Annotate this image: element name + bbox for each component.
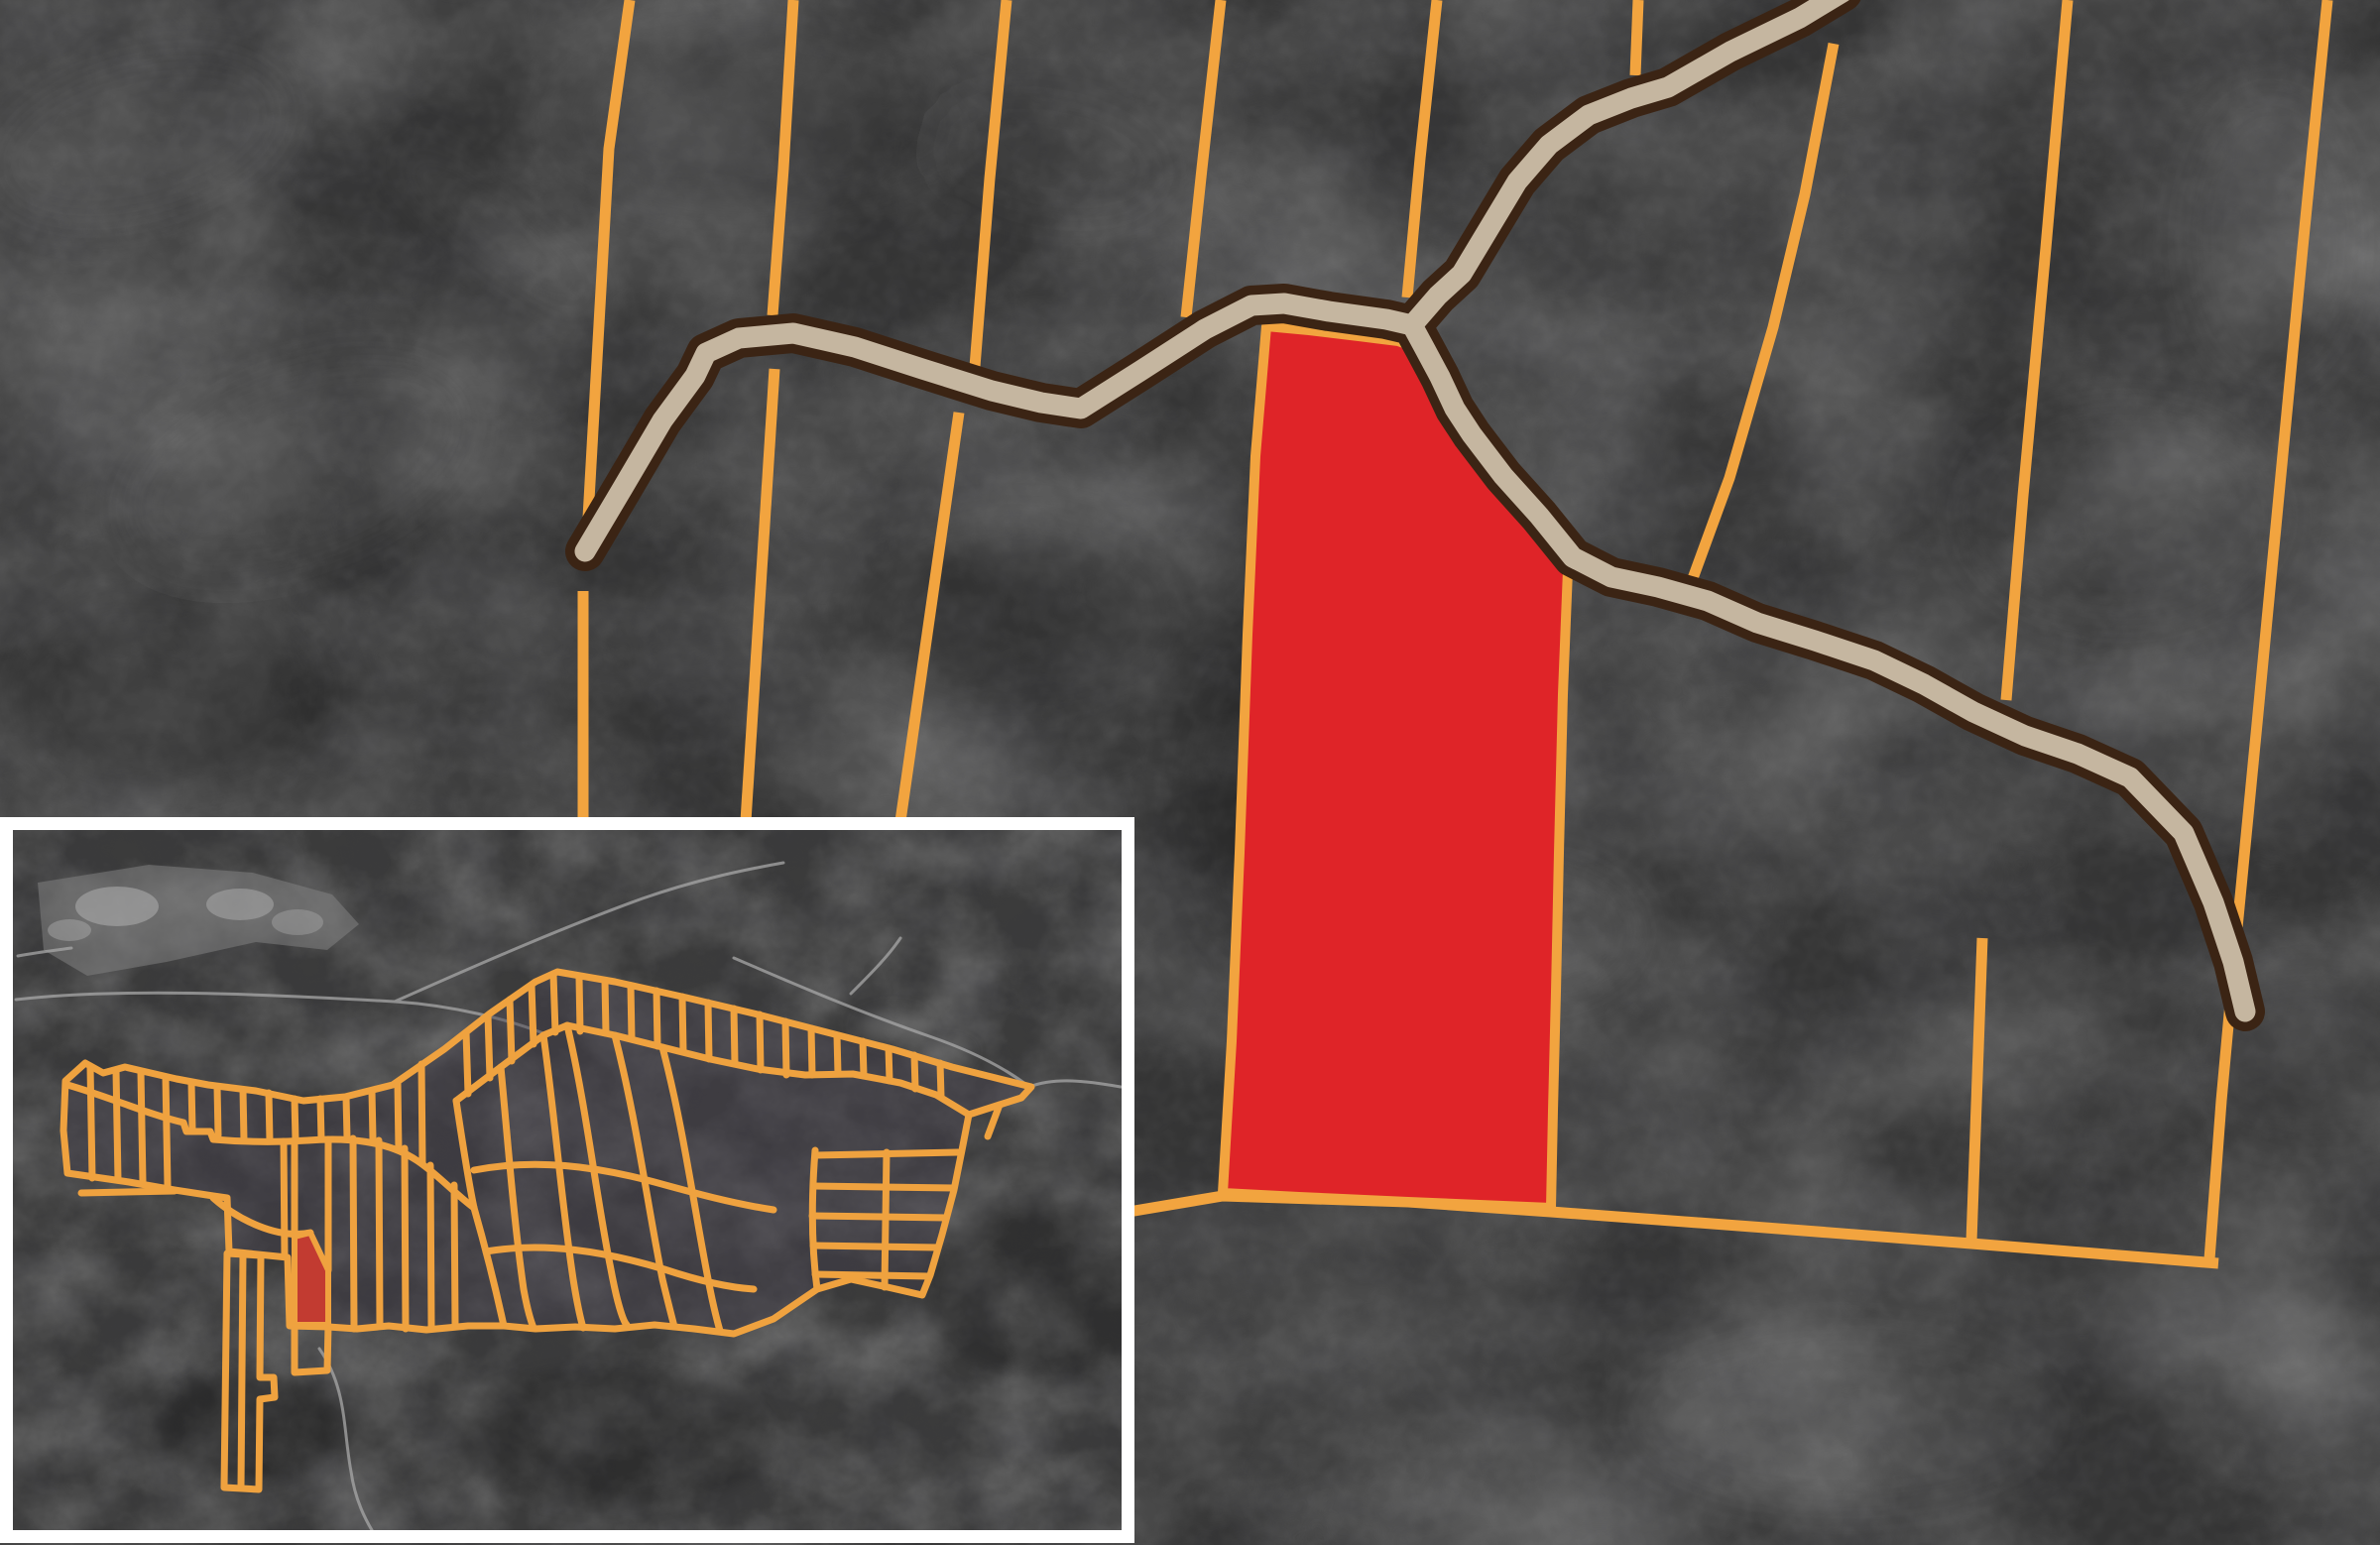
light-terrain-patch bbox=[1626, 1329, 2063, 1507]
inset-light-patch bbox=[859, 1011, 926, 1041]
inset-parcel-line bbox=[454, 1185, 455, 1326]
inset-parcel-line bbox=[284, 1141, 285, 1256]
inset-parcel-line bbox=[656, 991, 657, 1046]
inset-parcel-line bbox=[863, 1041, 864, 1076]
inset-parcel-line bbox=[553, 974, 555, 1032]
inset-field-patch bbox=[48, 919, 91, 941]
inset-parcel-line bbox=[379, 1140, 380, 1326]
inset-field-patch bbox=[206, 889, 274, 920]
inset-parcel-line bbox=[353, 1138, 354, 1329]
inset-parcel-line bbox=[430, 1165, 431, 1327]
inset-parcel-line bbox=[532, 985, 534, 1044]
inset-parcel-line bbox=[346, 1097, 347, 1137]
inset-parcel-line bbox=[631, 986, 632, 1039]
inset-field-patch bbox=[75, 887, 159, 926]
inset-parcel-line bbox=[605, 981, 606, 1033]
inset-parcel-line bbox=[914, 1055, 915, 1089]
inset-parcel-line bbox=[734, 1009, 735, 1064]
overview-inset[interactable] bbox=[7, 824, 1161, 1537]
inset-parcel-line bbox=[682, 997, 683, 1052]
inset-parcel-line bbox=[269, 1093, 270, 1141]
inset-parcel-line bbox=[191, 1083, 192, 1130]
inset-parcel-line bbox=[813, 1246, 938, 1248]
dark-terrain-patch bbox=[10, 595, 327, 793]
inset-dark-patch bbox=[159, 1373, 337, 1483]
inset-parcel-line bbox=[466, 1032, 468, 1094]
inset-parcel-line bbox=[837, 1035, 838, 1074]
inset-parcel-line bbox=[940, 1063, 941, 1097]
inset-parcel-line bbox=[141, 1072, 143, 1182]
inset-parcel-line bbox=[166, 1077, 168, 1186]
inset-parcel-line bbox=[398, 1083, 399, 1150]
inset-dark-patch bbox=[456, 1368, 773, 1507]
inset-field-patch bbox=[272, 909, 323, 935]
inset-parcel-line bbox=[815, 1274, 928, 1276]
inset-parcel-line bbox=[217, 1087, 218, 1135]
map-canvas[interactable] bbox=[0, 0, 2380, 1545]
inset-parcel-line bbox=[241, 1254, 243, 1487]
dark-terrain-patch bbox=[853, 526, 1170, 704]
inset-parcel-line bbox=[510, 1000, 512, 1061]
inset-content bbox=[13, 830, 1160, 1535]
inset-parcel-line bbox=[116, 1070, 118, 1180]
inset-parcel-line bbox=[372, 1091, 373, 1138]
map-viewport[interactable] bbox=[0, 0, 2380, 1545]
inset-parcel-line bbox=[708, 1003, 709, 1059]
parcel-line bbox=[1635, 0, 1638, 75]
inset-parcel-line bbox=[405, 1148, 406, 1329]
inset-parcel-line bbox=[90, 1066, 92, 1178]
inset-parcel-line bbox=[320, 1099, 321, 1139]
inset-parcel-line bbox=[295, 1099, 296, 1140]
inset-parcel-line bbox=[243, 1090, 244, 1140]
inset-parcel-line bbox=[885, 1152, 887, 1287]
light-terrain-patch bbox=[2182, 89, 2360, 387]
inset-parcel-line bbox=[421, 1064, 422, 1162]
inset-parcel-line bbox=[889, 1048, 890, 1081]
inset-parcel-line bbox=[811, 1028, 812, 1075]
inset-parcel-line bbox=[812, 1216, 946, 1218]
inset-parcel-line bbox=[785, 1021, 786, 1075]
inset-parcel-line bbox=[579, 978, 580, 1031]
inset-parcel-line bbox=[81, 1191, 175, 1193]
inset-parcel-line bbox=[488, 1015, 490, 1078]
inset-parcel-line bbox=[760, 1014, 761, 1070]
